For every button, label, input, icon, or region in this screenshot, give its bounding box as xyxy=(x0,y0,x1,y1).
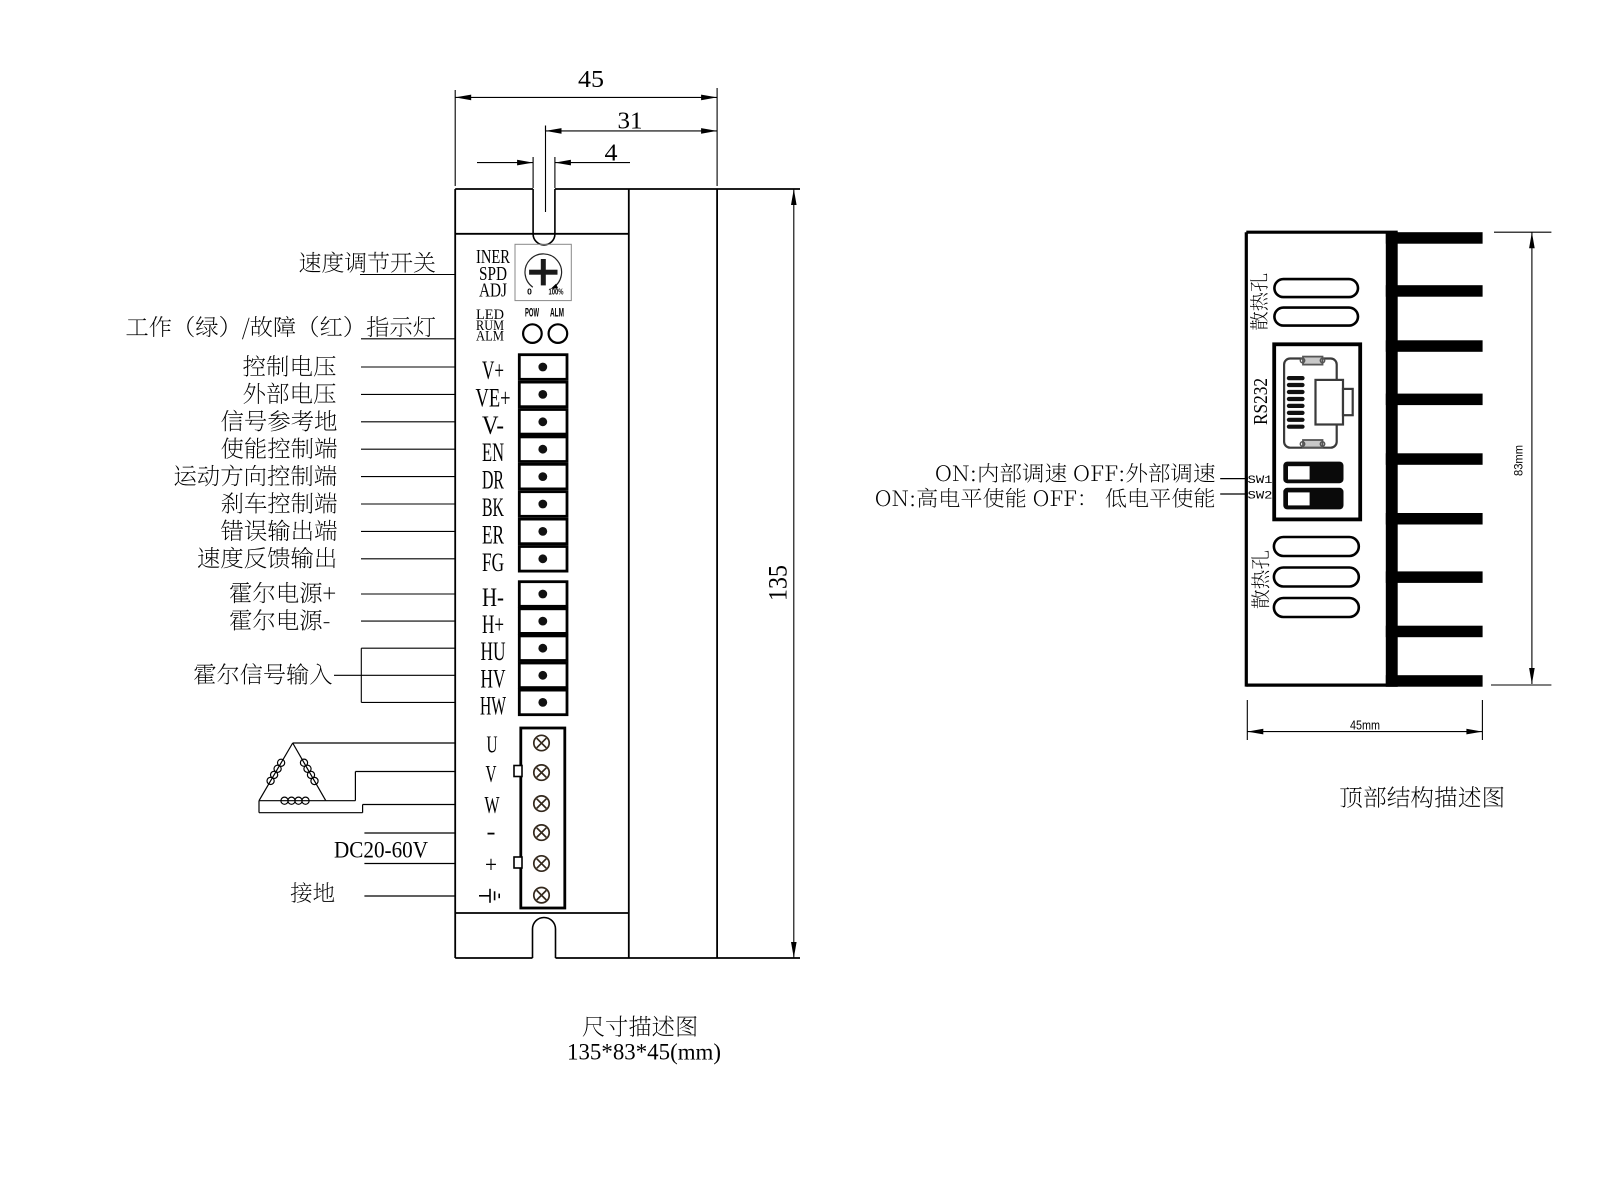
svg-text:HV: HV xyxy=(481,664,506,693)
svg-text:-: - xyxy=(487,820,496,846)
svg-text:HU: HU xyxy=(481,637,506,666)
svg-text:135*83*45(mm): 135*83*45(mm) xyxy=(567,1040,721,1065)
svg-text:0: 0 xyxy=(527,287,532,297)
svg-text:V-: V- xyxy=(482,411,504,440)
svg-text:ALM: ALM xyxy=(550,305,564,319)
svg-text:DC20-60V: DC20-60V xyxy=(334,838,428,863)
svg-text:SW1: SW1 xyxy=(1248,475,1273,487)
svg-text:W: W xyxy=(485,793,500,819)
svg-text:ALM: ALM xyxy=(476,329,504,345)
svg-text:100%: 100% xyxy=(549,287,564,297)
svg-text:V+: V+ xyxy=(482,356,504,385)
svg-text:SW2: SW2 xyxy=(1248,491,1273,503)
svg-text:RS232: RS232 xyxy=(1250,378,1272,425)
svg-text:POW: POW xyxy=(525,305,539,319)
svg-text:H-: H- xyxy=(482,583,504,612)
svg-text:45: 45 xyxy=(578,67,604,93)
svg-text:4: 4 xyxy=(605,140,618,166)
svg-text:HW: HW xyxy=(480,691,506,720)
svg-text:45mm: 45mm xyxy=(1350,718,1380,732)
svg-text:135: 135 xyxy=(764,565,793,601)
svg-text:83mm: 83mm xyxy=(1512,445,1526,476)
svg-text:VE+: VE+ xyxy=(476,383,511,412)
svg-text:+: + xyxy=(485,853,497,879)
svg-text:ER: ER xyxy=(482,520,504,549)
svg-text:V: V xyxy=(486,762,497,788)
svg-text:EN: EN xyxy=(482,438,504,467)
svg-text:ADJ: ADJ xyxy=(479,280,507,302)
svg-text:BK: BK xyxy=(482,493,504,522)
svg-text:31: 31 xyxy=(618,109,643,135)
svg-text:U: U xyxy=(487,733,498,759)
svg-text:DR: DR xyxy=(482,466,504,495)
svg-text:FG: FG xyxy=(482,548,504,577)
svg-text:H+: H+ xyxy=(482,610,504,639)
